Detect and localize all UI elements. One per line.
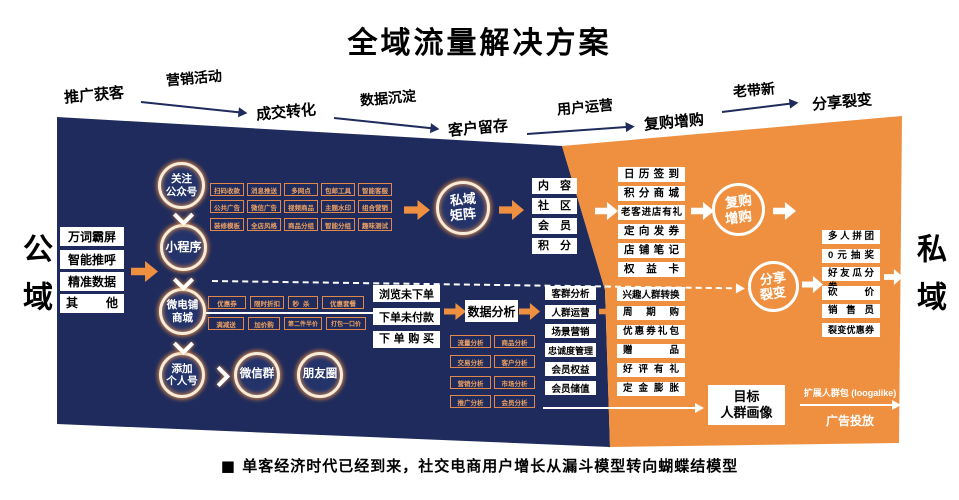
- pillar-box: 内容: [532, 178, 577, 194]
- analysis-box: 客户分析: [494, 355, 535, 368]
- stage-retain: 客户留存: [447, 114, 509, 140]
- feature-box: 智能分组: [321, 218, 355, 231]
- node-label: 关注: [171, 173, 192, 185]
- tactic-box: 定向发券: [618, 224, 685, 239]
- fission-tactic-box: 好评有礼: [617, 363, 685, 377]
- tactic-box: 积分商城: [618, 186, 685, 201]
- channel-box: 万词霸屏: [60, 227, 124, 246]
- analysis-box: 营销分析: [450, 376, 491, 389]
- promo-box: 打包一口价: [326, 317, 366, 330]
- promo-box: 优惠套餐: [322, 296, 364, 309]
- tool-box: 0元抽奖: [822, 249, 880, 263]
- analysis-box: 流量分析: [450, 335, 491, 348]
- link-data: 数据沉淀: [359, 86, 417, 111]
- feature-box: 装修模板: [210, 218, 244, 231]
- page-title: 全域流量解决方案: [0, 18, 959, 62]
- portrait-label: 人群画像: [720, 405, 772, 421]
- bowtie-diagram: 全域流量解决方案 推广获客 营销活动 成交转化 数据沉淀 客户留存 用户运营 复…: [0, 0, 959, 500]
- link-referral: 老带新: [732, 78, 776, 102]
- operation-box: 场景营销: [545, 324, 596, 338]
- feature-box: 组合营销: [358, 200, 392, 213]
- tactic-box: 老客进店有礼: [618, 205, 685, 220]
- pillar-box: 积分: [532, 238, 577, 254]
- fission-tactic-box: 周期购: [617, 306, 685, 320]
- tool-box: 销售员: [822, 304, 880, 318]
- feature-box: 主题水印: [321, 200, 355, 213]
- promo-box: 加价购: [248, 317, 280, 330]
- analysis-box: 商品分析: [494, 335, 535, 348]
- node-label: 增购: [724, 208, 753, 227]
- node-label: 商城: [172, 312, 193, 324]
- node-label: 微信群: [240, 368, 275, 381]
- promo-box: 限时折扣: [250, 296, 284, 309]
- feature-box: 趣味测试: [358, 218, 392, 231]
- node-wechat-group: 微信群: [234, 352, 280, 398]
- stage-repurchase: 复购增购: [643, 108, 705, 134]
- node-label: 个人号: [166, 375, 198, 387]
- tool-box: 砍价: [822, 286, 880, 300]
- order-box: 下单购买: [373, 331, 440, 348]
- public-domain-label: 公域: [12, 233, 56, 329]
- audience-portrait-box: 目标 人群画像: [708, 385, 785, 425]
- flow-arrow-1: [141, 101, 245, 114]
- stage-convert: 成交转化: [255, 98, 317, 124]
- tool-box: 裂变优惠券: [822, 323, 880, 337]
- lookalike-label: 扩展人群包 (loogalike): [796, 386, 904, 399]
- ads-arrow: [800, 404, 898, 406]
- tactic-box: 店铺笔记: [618, 243, 685, 258]
- feature-box: 公共广告: [210, 200, 244, 213]
- node-label: 矩阵: [449, 207, 476, 225]
- portrait-arrow: [543, 407, 701, 409]
- fission-tactic-box: 赠品: [617, 344, 685, 358]
- feature-box: 多网点: [284, 183, 318, 196]
- operation-box: 客群分析: [545, 286, 596, 300]
- node-label: 朋友圈: [303, 368, 338, 381]
- operation-box: 人群运营: [545, 305, 596, 319]
- flow-arrow-4: [722, 102, 796, 113]
- pillar-box: 社区: [532, 198, 577, 214]
- feature-box: 商品分组: [284, 218, 318, 231]
- tactic-box: 权益卡: [618, 262, 685, 277]
- node-mini-program: 小程序: [160, 224, 207, 271]
- analysis-box: 会员分析: [494, 395, 535, 408]
- operation-box: 忠诚度管理: [545, 343, 596, 357]
- node-moments: 朋友圈: [297, 352, 343, 398]
- operation-box: 会员储值: [545, 381, 596, 395]
- divider-line: [206, 312, 395, 314]
- channel-box: 精准数据: [60, 272, 124, 291]
- channel-box: 其他: [60, 294, 124, 313]
- link-marketing: 营销活动: [165, 66, 223, 91]
- feature-box: 全店风格: [247, 218, 281, 231]
- private-domain-label: 私域: [906, 233, 950, 329]
- node-official-account: 关注 公众号: [158, 162, 205, 209]
- fission-tactic-box: 定金膨胀: [617, 382, 685, 396]
- order-box: 下单未付款: [373, 308, 440, 325]
- stage-fission: 分享裂变: [811, 88, 873, 114]
- feature-box: 包邮工具: [321, 183, 355, 196]
- feature-box: 智能客服: [358, 183, 392, 196]
- promo-box: 满减送: [208, 317, 244, 330]
- pillar-box: 会员: [532, 218, 577, 234]
- analysis-box: 市场分析: [494, 376, 535, 389]
- ads-label: 广告投放: [796, 412, 904, 429]
- channel-box: 智能推呼: [60, 250, 124, 269]
- tool-box: 好友瓜分券: [822, 267, 880, 281]
- node-micro-shop: 微电铺 商城: [159, 288, 206, 335]
- node-label: 公众号: [166, 186, 198, 198]
- feature-box: 视频商品: [284, 200, 318, 213]
- analysis-box: 交易分析: [450, 355, 491, 368]
- node-label: 微电铺: [167, 299, 199, 311]
- feature-box: 扫码收款: [210, 183, 244, 196]
- stage-acquire: 推广获客: [63, 81, 125, 107]
- link-operate: 用户运营: [556, 95, 614, 120]
- flow-arrow-3: [527, 126, 632, 135]
- node-personal-account: 添加 个人号: [159, 352, 205, 398]
- portrait-label: 目标: [733, 389, 759, 405]
- feature-box: 微信广告: [247, 200, 281, 213]
- node-label: 小程序: [165, 241, 201, 255]
- operation-box: 会员权益: [545, 362, 596, 376]
- node-label: 添加: [172, 363, 193, 375]
- tactic-box: 日历签到: [618, 167, 685, 182]
- node-private-matrix: 私域 矩阵: [436, 181, 490, 235]
- promo-box: 秒杀: [288, 296, 318, 309]
- data-analysis-box: 数据分析: [465, 300, 518, 322]
- tool-box: 多人拼团: [822, 230, 880, 244]
- flow-arrow-2: [334, 117, 437, 130]
- order-box: 浏览未下单: [373, 285, 440, 302]
- fission-tactic-box: 兴趣人群转换: [617, 287, 685, 301]
- analysis-box: 推广分析: [450, 395, 491, 408]
- node-label: 裂变: [760, 285, 788, 303]
- feature-box: 消息推送: [247, 183, 281, 196]
- node-fission: 分享 裂变: [748, 261, 799, 312]
- promo-box: 优惠券: [208, 296, 246, 309]
- promo-box: 第二件半价: [284, 317, 322, 330]
- fission-tactic-box: 优惠券礼包: [617, 325, 685, 339]
- node-repurchase: 复购 增购: [712, 183, 765, 236]
- footnote: ■ 单客经济时代已经到来，社交电商用户增长从漏斗模型转向蝴蝶结模型: [0, 455, 959, 476]
